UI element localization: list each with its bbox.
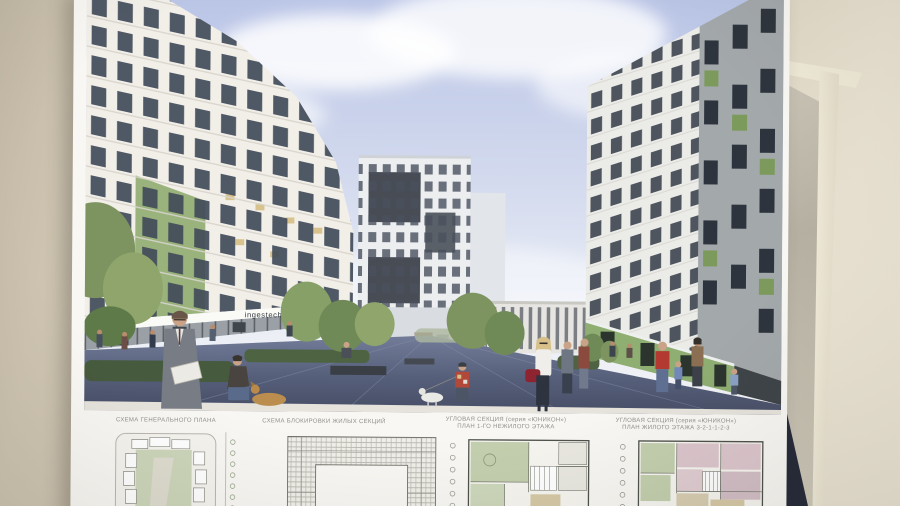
storefront-sign: ingestech	[245, 310, 283, 319]
plan-blocking	[275, 426, 448, 506]
poster-board: ingestech	[70, 0, 790, 506]
plan-corner-typical-caption: УГЛОВАЯ СЕКЦИЯ (серия «ЮНИКОН») ПЛАН ЖИЛ…	[596, 418, 756, 433]
rendering-scene: ingestech	[84, 0, 784, 415]
plan-siteplan-caption: СХЕМА ГЕНЕРАЛЬНОГО ПЛАНА	[91, 417, 241, 425]
plan-siteplan	[101, 427, 252, 506]
plan-corner-first-floor	[444, 432, 597, 506]
plan-blocking-caption: СХЕМА БЛОКИРОВКИ ЖИЛЫХ СЕКЦИЙ	[249, 418, 399, 426]
plan-corner-typical-floor	[614, 433, 773, 506]
photo-of-presentation-board: ingestech	[0, 0, 900, 506]
architectural-rendering: ingestech	[84, 0, 784, 415]
plan-corner-first-caption: УГЛОВАЯ СЕКЦИЯ (серия «ЮНИКОН») ПЛАН 1-Г…	[426, 416, 586, 431]
